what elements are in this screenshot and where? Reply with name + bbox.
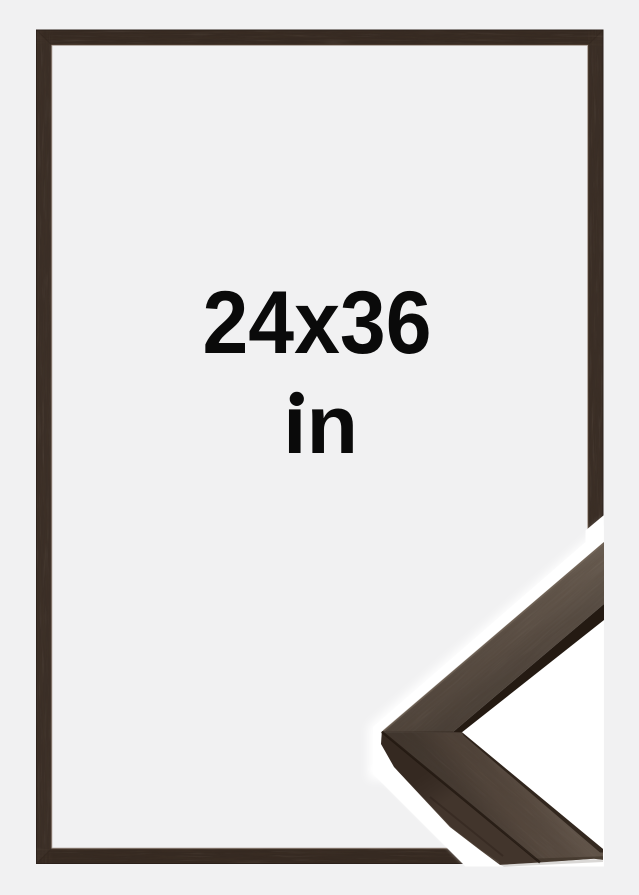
- svg-text:ın: ın: [283, 378, 358, 471]
- svg-text:24x36: 24x36: [203, 272, 432, 372]
